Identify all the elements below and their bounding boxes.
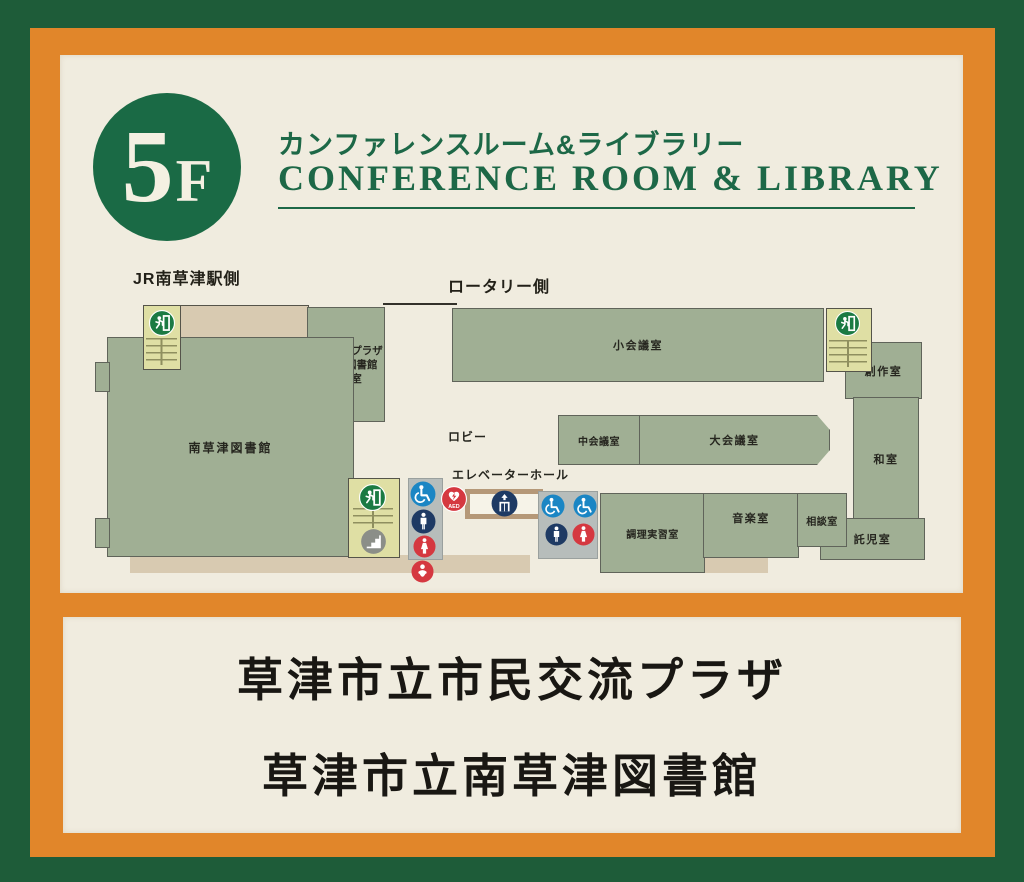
womens-toilet-icon bbox=[413, 535, 436, 558]
room-library-label: 南草津図書館 bbox=[188, 439, 272, 456]
direction-label-station: JR南草津駅側 bbox=[133, 265, 240, 289]
wheelchair-icon bbox=[541, 494, 565, 518]
facility-name-library: 草津市立南草津図書館 bbox=[262, 740, 762, 806]
room-consultation-label: 相談室 bbox=[806, 513, 838, 528]
mens-toilet-icon bbox=[411, 509, 436, 534]
mens-toilet-icon bbox=[545, 523, 568, 546]
library-wall-notch-upper bbox=[95, 362, 110, 392]
stairs-treads-northwest bbox=[146, 338, 177, 365]
floor-map: 市民交流プラザ 南草津図書館 事務室 小会議室 南草津図書館 中会議室 大会議室 bbox=[95, 300, 930, 590]
facility-name-panel: 草津市立市民交流プラザ 草津市立南草津図書館 bbox=[63, 617, 961, 833]
corridor-bottom-right bbox=[703, 556, 768, 573]
elevator-hall-label: エレベーターホール bbox=[452, 466, 569, 483]
baby-care-icon bbox=[411, 560, 434, 583]
room-music: 音楽室 bbox=[703, 493, 799, 558]
stairs-treads-southwest bbox=[353, 508, 393, 528]
room-cooking-label: 調理実習室 bbox=[626, 526, 679, 541]
room-small-meeting: 小会議室 bbox=[452, 308, 824, 382]
room-small-meeting-label: 小会議室 bbox=[613, 337, 663, 353]
room-childcare-label: 託児室 bbox=[854, 531, 892, 547]
emergency-exit-icon bbox=[149, 310, 175, 336]
floor-badge: 5F bbox=[93, 93, 241, 241]
stairs-treads-northeast bbox=[829, 340, 867, 367]
lobby-label: ロビー bbox=[448, 428, 487, 445]
room-large-meeting-label: 大会議室 bbox=[710, 432, 760, 448]
womens-toilet-icon bbox=[572, 523, 595, 546]
wheelchair-icon bbox=[573, 494, 597, 518]
map-panel: 5F カンファレンスルーム&ライブラリー CONFERENCE ROOM & L… bbox=[60, 55, 963, 593]
sign-frame: 5F カンファレンスルーム&ライブラリー CONFERENCE ROOM & L… bbox=[30, 28, 995, 857]
floor-letter: F bbox=[176, 107, 213, 255]
room-cooking: 調理実習室 bbox=[600, 493, 705, 573]
page-title-english: CONFERENCE ROOM & LIBRARY bbox=[278, 157, 943, 199]
aed-icon: AED bbox=[441, 486, 467, 512]
stairs-icon bbox=[360, 528, 387, 555]
room-medium-meeting: 中会議室 bbox=[559, 416, 640, 464]
title-underline bbox=[278, 207, 915, 209]
room-japanese-label: 和室 bbox=[874, 451, 899, 467]
room-music-label: 音楽室 bbox=[732, 510, 770, 526]
wheelchair-icon bbox=[410, 481, 436, 507]
room-consultation: 相談室 bbox=[797, 493, 847, 547]
exterior-wall-segment bbox=[383, 303, 457, 305]
room-meeting-block: 中会議室 大会議室 bbox=[558, 415, 830, 465]
library-wall-notch-lower bbox=[95, 518, 110, 548]
room-library: 南草津図書館 bbox=[107, 337, 354, 557]
direction-label-rotary: ロータリー側 bbox=[448, 273, 550, 297]
floor-number: 5 bbox=[122, 93, 174, 241]
room-large-meeting: 大会議室 bbox=[640, 416, 829, 464]
facility-name-plaza: 草津市立市民交流プラザ bbox=[237, 644, 787, 710]
elevator-icon bbox=[491, 490, 518, 517]
emergency-exit-icon bbox=[359, 484, 386, 511]
emergency-exit-icon bbox=[835, 311, 860, 336]
corridor-bottom bbox=[130, 555, 530, 573]
room-japanese: 和室 bbox=[853, 397, 919, 520]
aed-label: AED bbox=[448, 504, 460, 510]
room-medium-meeting-label: 中会議室 bbox=[578, 433, 620, 448]
